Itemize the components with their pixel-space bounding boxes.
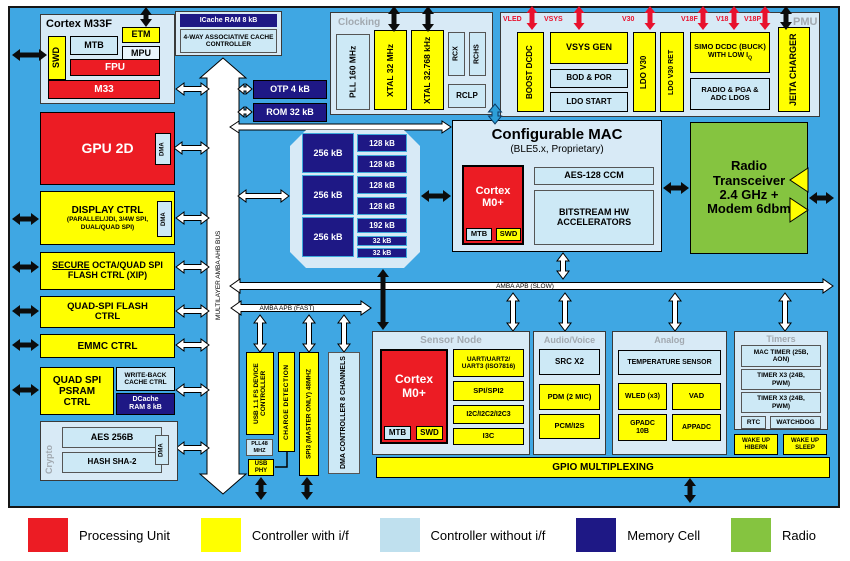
gpio-multiplexing-bar: GPIO MULTIPLEXING xyxy=(376,457,830,478)
legend-swatch-lightblue xyxy=(380,518,420,552)
display-ctrl-sub: (PARALLEL/JDI, 3/4W SPI, DUAL/QUAD SPI) xyxy=(53,216,163,230)
crypto-dma-block: DMA xyxy=(155,435,169,465)
pll48-block: PLL48 MHZ xyxy=(246,439,273,456)
ldo-v30-ret-block: LDO V30 RET xyxy=(660,32,684,112)
secure-underlined: SECURE xyxy=(52,260,90,270)
analog-title: Analog xyxy=(612,335,727,345)
ldo-v30-block: LDO V30 xyxy=(633,32,656,112)
rom-block: ROM 32 kB xyxy=(253,103,327,122)
legend-item-memory-cell: Memory Cell xyxy=(576,518,700,552)
xtal32m-block: XTAL 32 MHz xyxy=(374,30,407,110)
legend-label: Processing Unit xyxy=(79,528,170,543)
display-dma-block: DMA xyxy=(157,201,172,237)
quadspi-flash-block: QUAD-SPI FLASH CTRL xyxy=(40,296,175,328)
uart-block: UART/UART2/ UART3 (ISO7816) xyxy=(453,349,524,377)
sensor-cortex-m0-label: Cortex M0+ xyxy=(382,373,446,399)
wled-block: WLED (x3) xyxy=(618,383,667,410)
mac-swd-block: SWD xyxy=(496,228,521,241)
writeback-cache-block: WRITE-BACK CACHE CTRL xyxy=(116,367,175,391)
wakeup-hibern-block: WAKE UP HIBERN xyxy=(734,434,778,455)
sram-128k-3: 128 kB xyxy=(357,197,407,215)
etm-block: ETM xyxy=(122,27,160,43)
legend-label: Memory Cell xyxy=(627,528,700,543)
bitstream-block: BITSTREAM HW ACCELERATORS xyxy=(534,190,654,245)
icache-controller-block: 4-WAY ASSOCIATIVE CACHE CONTROLLER xyxy=(180,29,277,53)
pmu-title: PMU xyxy=(793,16,817,28)
apb-fast-label: AMBA APB (FAST) xyxy=(247,305,327,312)
aes256-block: AES 256B xyxy=(62,427,162,448)
otp-block: OTP 4 kB xyxy=(253,80,327,99)
rclp-block: RCLP xyxy=(448,84,486,108)
legend-label: Controller with i/f xyxy=(252,528,349,543)
legend-swatch-yellow xyxy=(201,518,241,552)
rchs-block: RCHS xyxy=(469,32,486,76)
usb-phy-block: USB PHY xyxy=(248,459,274,476)
sram-128k-2: 128 kB xyxy=(357,176,407,194)
dcache-ram-block: DCache RAM 8 kB xyxy=(116,393,175,415)
clocking-title: Clocking xyxy=(338,17,380,28)
legend-item-controller-if: Controller with i/f xyxy=(201,518,349,552)
crypto-title: Crypto xyxy=(44,428,54,474)
rail-v30: V30 xyxy=(622,16,634,23)
spi-spi2-block: SPI/SPI2 xyxy=(453,381,524,401)
sram-256k-1: 256 kB xyxy=(302,175,354,215)
gpu-dma-block: DMA xyxy=(155,133,171,165)
legend-item-processing-unit: Processing Unit xyxy=(28,518,170,552)
swd-block: SWD xyxy=(48,36,66,80)
rail-v18p: V18P xyxy=(744,16,761,23)
simo-dcdc-block: SIMO DCDC (BUCK) WITH LOW IQ xyxy=(690,32,770,73)
aes128-ccm-block: AES-128 CCM xyxy=(534,167,654,185)
legend: Processing Unit Controller with i/f Cont… xyxy=(8,514,838,556)
simo-line1: SIMO DCDC (BUCK) xyxy=(694,43,766,51)
pdm-block: PDM (2 MIC) xyxy=(539,384,600,410)
icache-ram-block: ICache RAM 8 kB xyxy=(180,14,277,27)
emmc-ctrl-block: EMMC CTRL xyxy=(40,334,175,358)
vsys-gen-block: VSYS GEN xyxy=(550,32,628,64)
sram-32k-1: 32 kB xyxy=(357,248,407,258)
i2c-block: I2C/I2C2/I2C3 xyxy=(453,405,524,424)
dma-controller-block: DMA CONTROLLER 8 CHANNELS xyxy=(328,352,360,474)
sram-128k-1: 128 kB xyxy=(357,155,407,173)
mac-title: Configurable MAC xyxy=(452,126,662,143)
cortex-m33f-title: Cortex M33F xyxy=(46,18,112,30)
sram-32k-0: 32 kB xyxy=(357,236,407,246)
pcm-i2s-block: PCM/I2S xyxy=(539,414,600,439)
audio-voice-title: Audio/Voice xyxy=(533,335,606,345)
legend-item-radio: Radio xyxy=(731,518,816,552)
legend-label: Radio xyxy=(782,528,816,543)
watchdog-block: WATCHDOG xyxy=(770,416,821,429)
multilayer-bus-label: MULTILAYER AMBA AHB BUS xyxy=(213,95,224,455)
hash-sha2-block: HASH SHA-2 xyxy=(62,452,162,473)
rtc-block: RTC xyxy=(741,416,766,429)
legend-swatch-green xyxy=(731,518,771,552)
soc-block-diagram: Cortex M33F ETM SWD MTB MPU FPU M33 ICac… xyxy=(0,0,850,561)
simo-line2: WITH LOW I xyxy=(708,52,748,59)
spi3-block: SPI3 (MASTER ONLY) 48MHZ xyxy=(299,352,319,476)
rail-v18: V18 xyxy=(716,16,728,23)
rail-vled: VLED xyxy=(503,16,522,23)
pll160-block: PLL 160 MHz xyxy=(336,34,370,110)
m33-block: M33 xyxy=(48,80,160,99)
mac-timer-block: MAC TIMER (25B, AON) xyxy=(741,345,821,367)
timers-title: Timers xyxy=(734,334,828,344)
sram-256k-0: 256 kB xyxy=(302,133,354,173)
xtal32k-block: XTAL 32.768 kHz xyxy=(411,30,444,110)
mac-cortex-m0-label: Cortex M0+ xyxy=(464,185,522,209)
sensor-swd-block: SWD xyxy=(416,426,443,440)
fpu-block: FPU xyxy=(70,59,160,76)
mac-mtb-block: MTB xyxy=(466,228,492,241)
charge-detection-block: CHARGE DETECTION xyxy=(278,352,295,452)
legend-swatch-red xyxy=(28,518,68,552)
sensor-mtb-block: MTB xyxy=(384,426,411,440)
secure-spi-flash-block: SECURE OCTA/QUAD SPI FLASH CTRL (XIP) xyxy=(40,252,175,290)
rail-vsys: VSYS xyxy=(544,16,563,23)
radio-ldos-block: RADIO & PGA & ADC LDOS xyxy=(690,78,770,110)
simo-subscript: Q xyxy=(748,55,752,61)
legend-item-controller-no-if: Controller without i/f xyxy=(380,518,546,552)
display-ctrl-label: DISPLAY CTRL xyxy=(72,205,144,216)
mac-subtitle: (BLE5.x, Proprietary) xyxy=(452,144,662,155)
sram-128k-0: 128 kB xyxy=(357,134,407,152)
apb-slow-label: AMBA APB (SLOW) xyxy=(480,283,570,290)
bod-por-block: BOD & POR xyxy=(550,69,628,88)
sensor-node-title: Sensor Node xyxy=(372,335,530,346)
rail-v18f: V18F xyxy=(681,16,698,23)
timer-x3a-block: TIMER X3 (24B, PWM) xyxy=(741,369,821,390)
appadc-block: APPADC xyxy=(672,414,721,441)
legend-label: Controller without i/f xyxy=(431,528,546,543)
jeita-charger-block: JEITA CHARGER xyxy=(778,27,810,112)
vad-block: VAD xyxy=(672,383,721,410)
wakeup-sleep-block: WAKE UP SLEEP xyxy=(783,434,827,455)
usb-controller-block: USB 1.1 FS DEVICE CONTROLLER xyxy=(246,352,274,435)
rcx-block: RCX xyxy=(448,32,465,76)
timer-x3b-block: TIMER X3 (24B, PWM) xyxy=(741,392,821,413)
sram-192k: 192 kB xyxy=(357,218,407,233)
i3c-block: I3C xyxy=(453,428,524,445)
psram-ctrl-block: QUAD SPI PSRAM CTRL xyxy=(40,367,114,415)
mtb-block: MTB xyxy=(70,36,118,55)
sram-256k-2: 256 kB xyxy=(302,217,354,257)
radio-transceiver-block: Radio Transceiver 2.4 GHz + Modem 6dbm xyxy=(690,122,808,254)
legend-swatch-navy xyxy=(576,518,616,552)
src-x2-block: SRC X2 xyxy=(539,349,600,375)
gpadc-block: GPADC 10B xyxy=(618,414,667,441)
temperature-sensor-block: TEMPERATURE SENSOR xyxy=(618,350,721,375)
display-ctrl-block: DISPLAY CTRL (PARALLEL/JDI, 3/4W SPI, DU… xyxy=(40,191,175,245)
boost-dcdc-block: BOOST DCDC xyxy=(517,32,544,112)
ldo-start-block: LDO START xyxy=(550,92,628,112)
